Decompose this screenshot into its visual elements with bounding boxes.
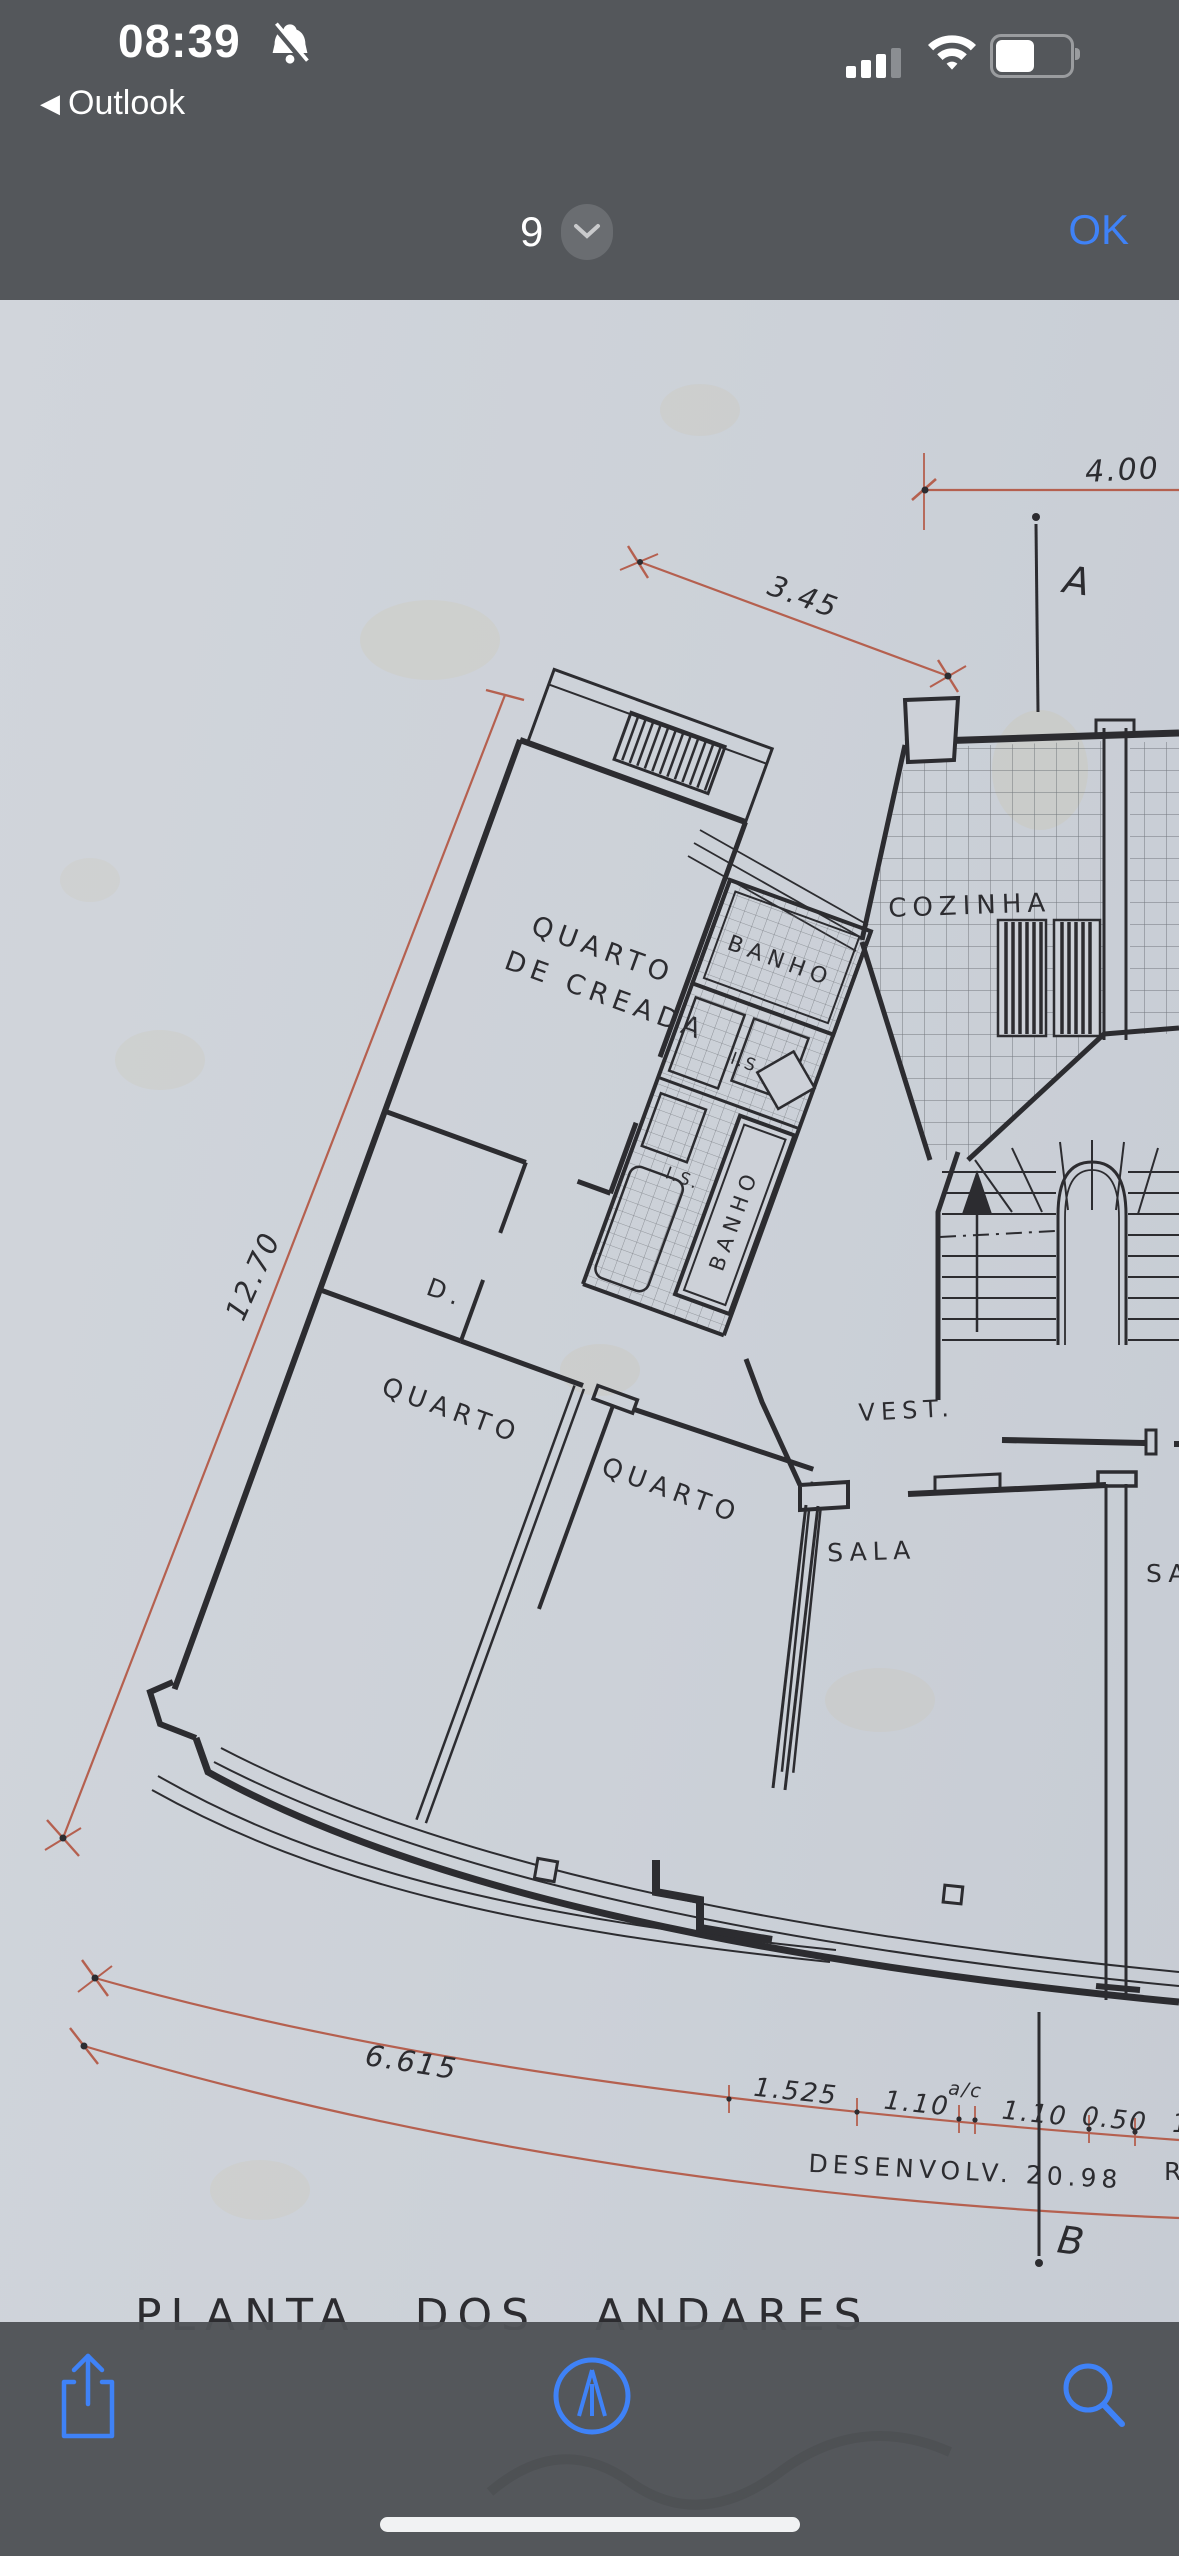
room-bedroom-mid: QUARTO [598, 1452, 745, 1530]
page-selector[interactable]: 9 [520, 204, 613, 260]
document-viewer[interactable]: 4.00 3.45 12.70 6.615 1.525 1.10 a/c 1.1… [0, 300, 1179, 2330]
dim-partial: 1 [1172, 2109, 1179, 2139]
kitchen-block: COZINHA [862, 698, 1179, 1160]
share-icon[interactable] [56, 2350, 120, 2447]
battery-icon [990, 34, 1074, 78]
axis-a-label: A [1058, 557, 1095, 605]
status-icons [840, 30, 1140, 90]
floor-plan-drawing: 4.00 3.45 12.70 6.615 1.525 1.10 a/c 1.1… [0, 300, 1179, 2330]
markup-icon[interactable] [552, 2350, 632, 2447]
room-closet: D. [423, 1272, 470, 1313]
dim-6615: 6.615 [363, 2038, 460, 2086]
ok-button[interactable]: OK [1068, 206, 1129, 254]
wifi-icon [926, 32, 978, 77]
axis-b-label: B [1055, 2217, 1089, 2264]
dim-110a: 1.10 [883, 2086, 952, 2123]
room-sala: SALA [827, 1535, 917, 1567]
back-app-label: Outlook [68, 84, 185, 123]
paper-stains [60, 384, 1088, 2220]
dim-345: 3.45 [764, 568, 844, 625]
room-vest: VEST. [858, 1394, 956, 1427]
page-number: 9 [520, 208, 543, 256]
dim-development: DESENVOLV. 20.98 [808, 2149, 1123, 2194]
dim-1270: 12.70 [218, 1227, 287, 1326]
back-chevron-icon: ◀ [40, 88, 60, 119]
status-bar: 08:39 ◀ Outlook [0, 0, 1179, 300]
search-icon[interactable] [1056, 2350, 1132, 2447]
curved-facade [150, 1682, 1179, 2002]
bell-slash-icon [268, 22, 312, 71]
iphone-screen: 08:39 ◀ Outlook [0, 0, 1179, 2556]
back-to-app-button[interactable]: ◀ Outlook [40, 84, 185, 123]
dim-400: 4.00 [1084, 451, 1161, 490]
room-sala-partial: SA [1146, 1559, 1179, 1588]
cellular-signal-icon [846, 48, 901, 78]
bottom-toolbar [0, 2322, 1179, 2556]
clock: 08:39 [118, 14, 241, 68]
room-kitchen: COZINHA [888, 888, 1052, 924]
dim-ac: a/c [947, 2077, 984, 2102]
chevron-down-icon[interactable] [561, 204, 613, 260]
home-indicator[interactable] [380, 2517, 800, 2532]
dim-1525: 1.525 [752, 2073, 839, 2112]
room-bedroom-left: QUARTO [378, 1372, 525, 1450]
dim-dev-partial: R [1164, 2157, 1179, 2186]
